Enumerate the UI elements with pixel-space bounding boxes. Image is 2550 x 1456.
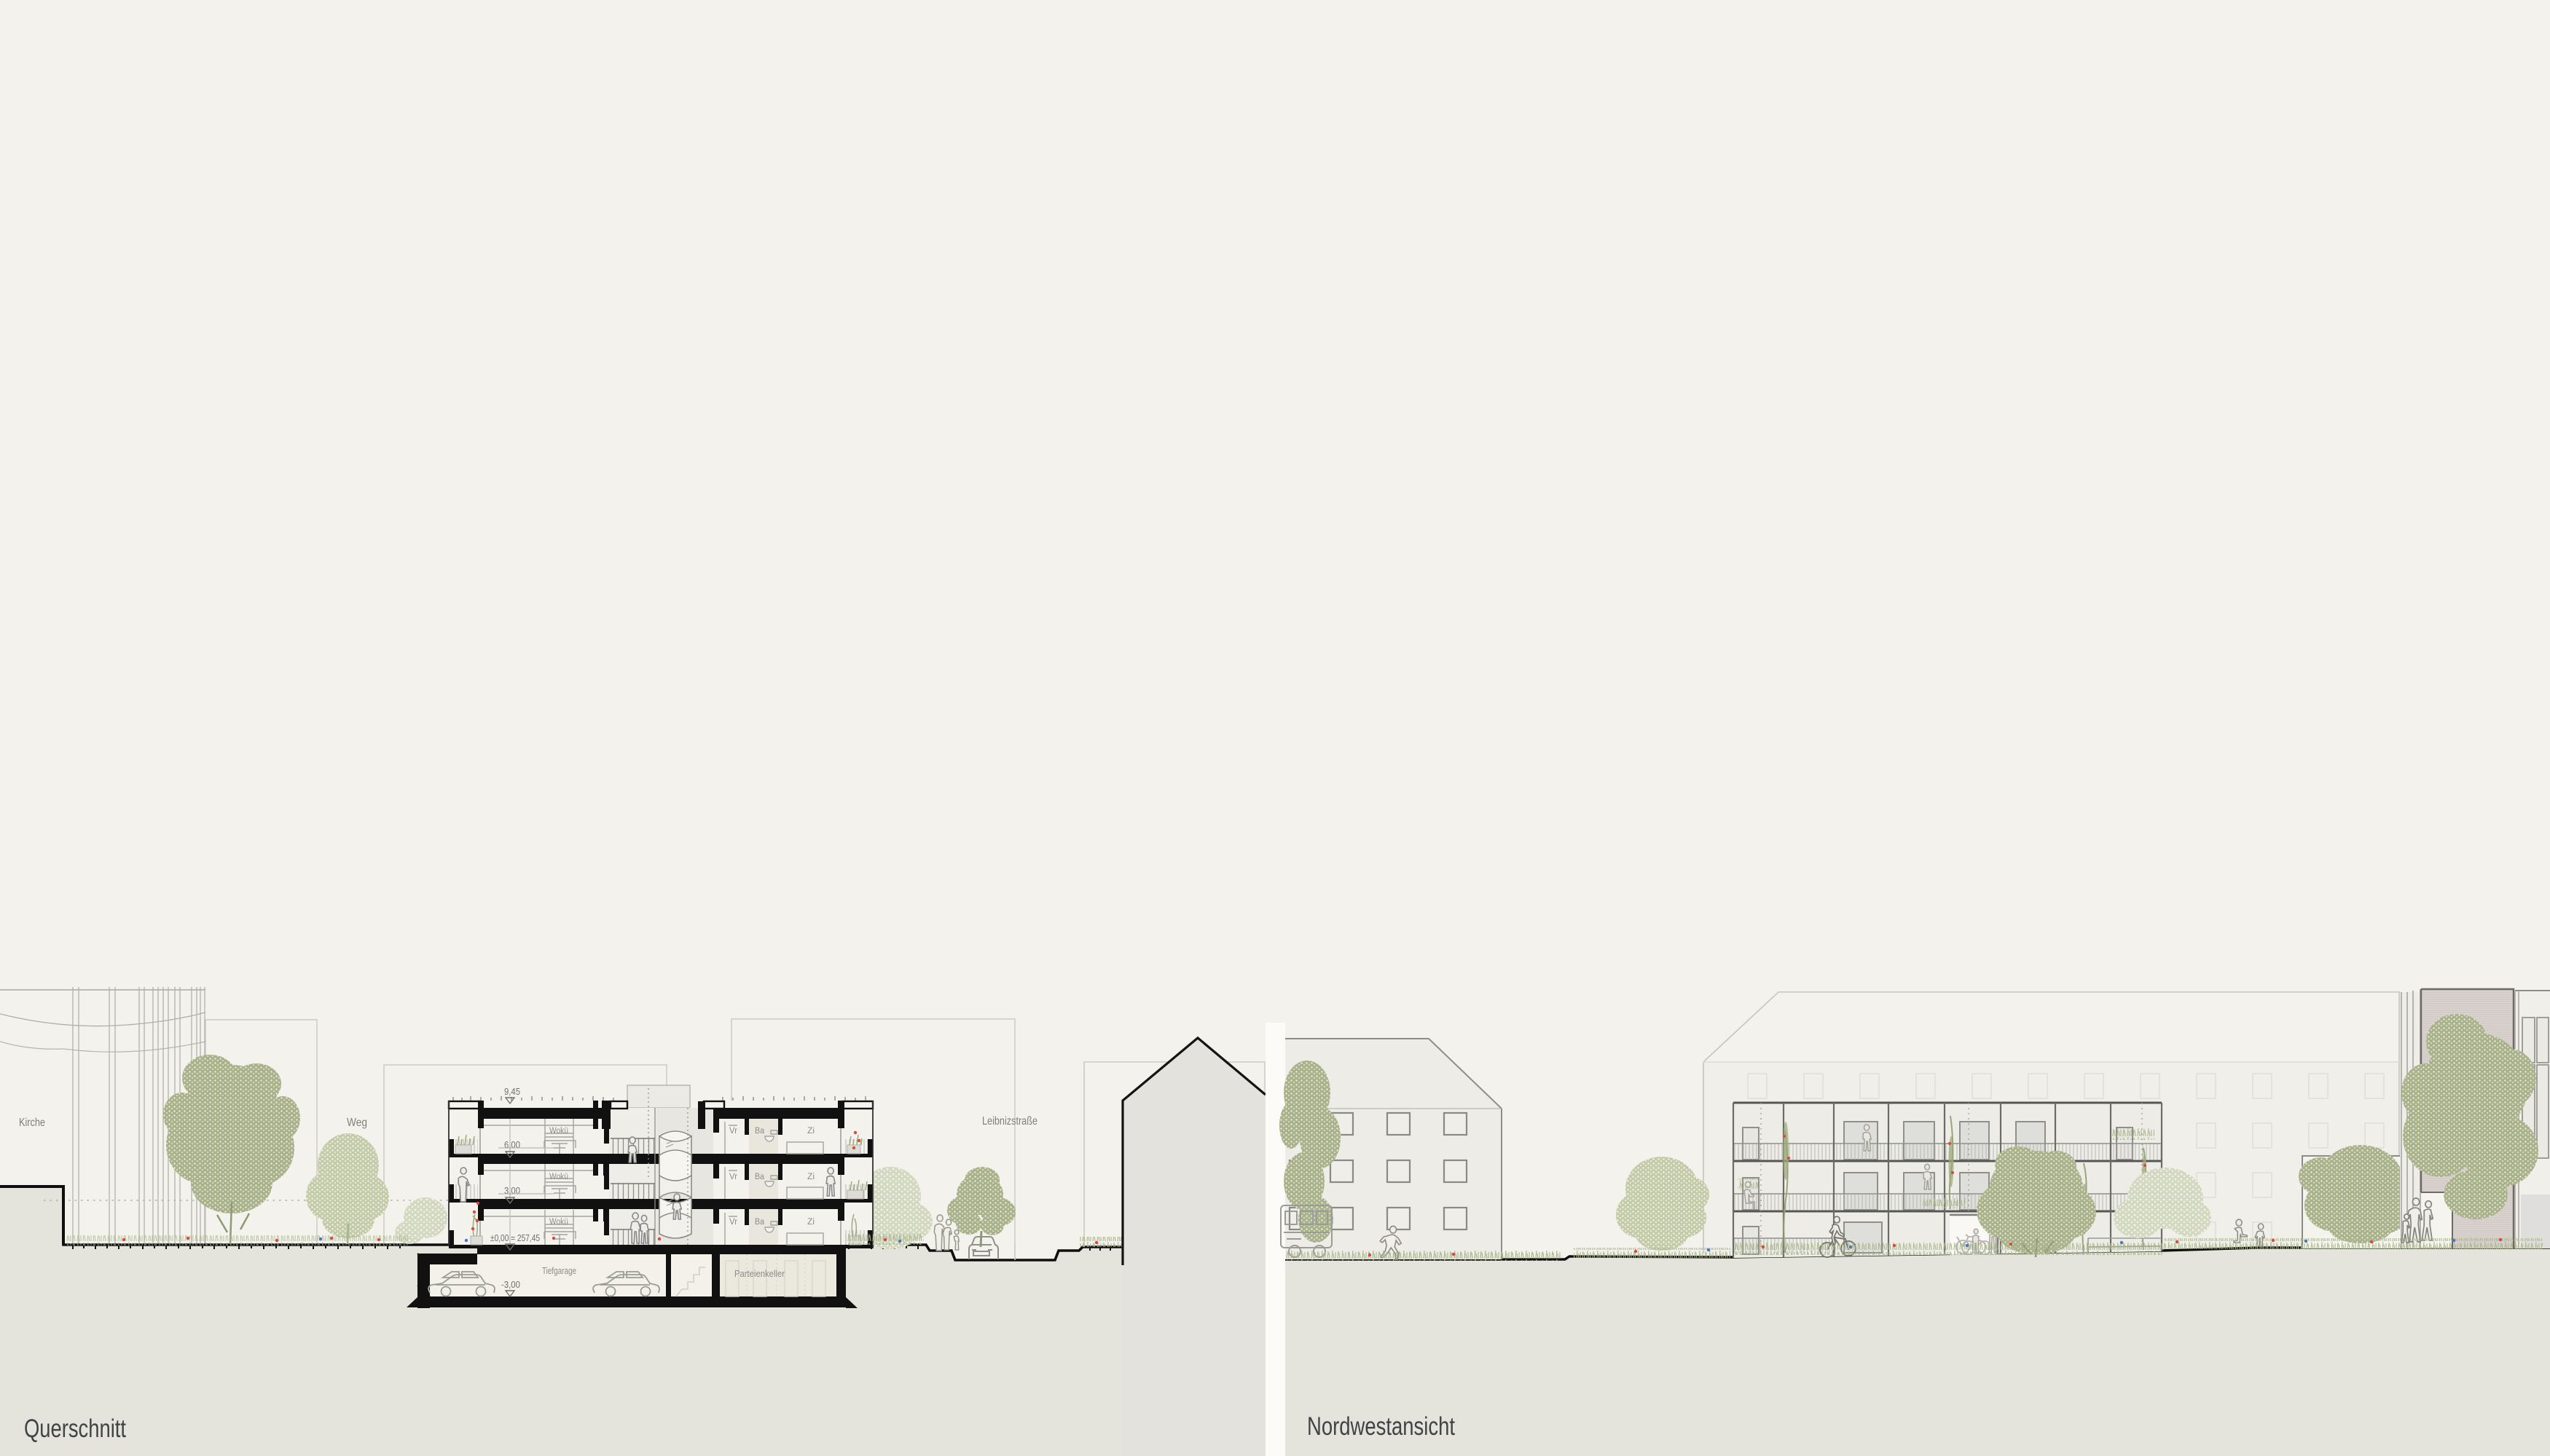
- svg-text:Vr: Vr: [729, 1127, 737, 1136]
- svg-text:Wokü: Wokü: [549, 1173, 568, 1181]
- svg-text:Wokü: Wokü: [549, 1127, 568, 1136]
- svg-text:Ba: Ba: [755, 1218, 765, 1227]
- svg-text:Vr: Vr: [729, 1173, 737, 1181]
- svg-text:Querschnitt: Querschnitt: [24, 1414, 126, 1443]
- svg-text:Weg: Weg: [347, 1117, 367, 1129]
- svg-text:Wokü: Wokü: [549, 1218, 568, 1227]
- svg-text:Tiefgarage: Tiefgarage: [542, 1266, 576, 1276]
- svg-text:Zi: Zi: [807, 1173, 815, 1181]
- svg-text:Leibnizstraße: Leibnizstraße: [982, 1115, 1037, 1128]
- svg-text:Zi: Zi: [807, 1218, 815, 1227]
- svg-text:Parteienkeller: Parteienkeller: [734, 1269, 785, 1279]
- svg-text:3,00: 3,00: [504, 1185, 520, 1196]
- svg-text:6,00: 6,00: [504, 1139, 520, 1150]
- svg-text:Zi: Zi: [807, 1127, 815, 1136]
- svg-text:Nordwestansicht: Nordwestansicht: [1307, 1412, 1455, 1441]
- svg-text:Kirche: Kirche: [19, 1117, 45, 1129]
- svg-text:Ba: Ba: [755, 1173, 765, 1181]
- svg-text:9,45: 9,45: [504, 1086, 520, 1097]
- svg-text:±0,00 = 257,45: ±0,00 = 257,45: [490, 1232, 540, 1243]
- svg-text:-3,00: -3,00: [501, 1279, 520, 1290]
- svg-text:Ba: Ba: [755, 1127, 765, 1136]
- svg-text:Vr: Vr: [729, 1218, 737, 1227]
